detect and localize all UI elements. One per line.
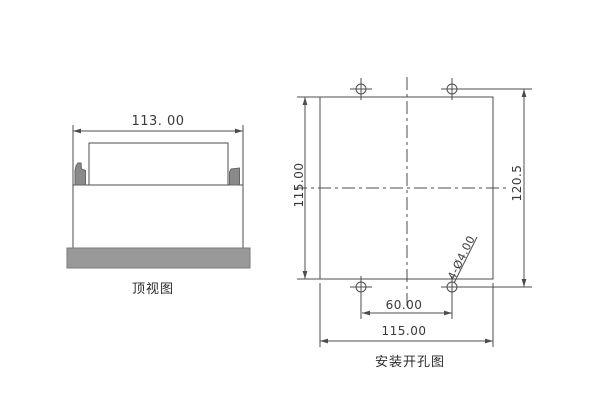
mounting-view-caption: 安装开孔图: [350, 356, 470, 370]
top-view-panel: [89, 143, 228, 185]
top-view-width-dim-text: 113. 00: [108, 115, 208, 129]
top-view-caption: 顶视图: [103, 283, 203, 297]
arrow-right: [235, 129, 243, 134]
cutout-height-dim-text: 115.00: [292, 155, 306, 215]
top-view-drawing: [67, 125, 250, 268]
hole-spacing-dim-text: 60.00: [364, 298, 444, 312]
top-view-right-clip: [230, 168, 240, 185]
top-view-bezel-bar: [67, 248, 250, 268]
top-view-left-clip: [75, 163, 86, 185]
top-view-body: [73, 185, 243, 248]
arrow-left: [73, 129, 81, 134]
cutout-width-dim-text: 115.00: [364, 324, 444, 338]
technical-drawing-page: 113. 00 顶视图 115.00 120.5 60.00 115.00 4-…: [0, 0, 600, 400]
overall-height-dim-text: 120.5: [510, 153, 524, 213]
